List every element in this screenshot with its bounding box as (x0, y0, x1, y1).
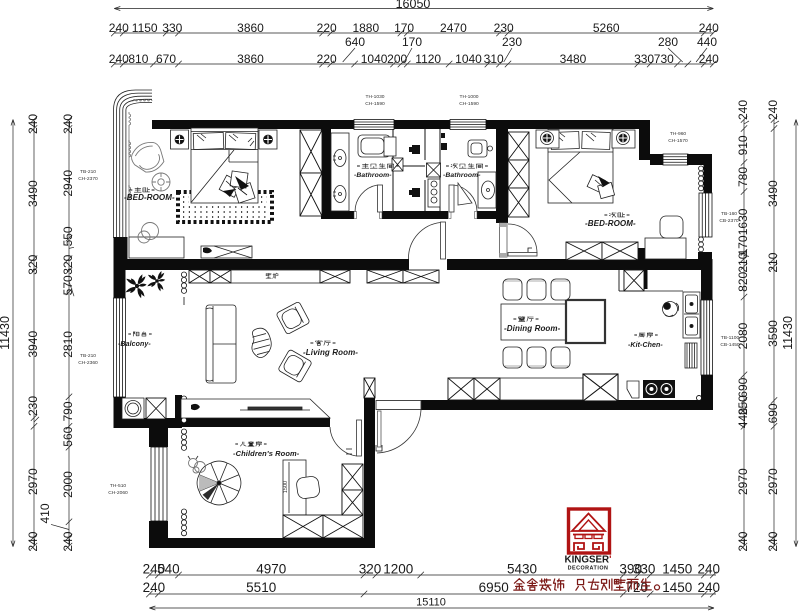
svg-text:5260: 5260 (593, 21, 620, 35)
svg-text:240: 240 (699, 52, 719, 66)
svg-text:170: 170 (402, 35, 422, 49)
svg-text:170: 170 (736, 235, 750, 255)
svg-text:820: 820 (736, 271, 750, 291)
svg-text:11430: 11430 (781, 316, 795, 350)
svg-text:CB-1450: CB-1450 (720, 342, 740, 348)
svg-text:TH-1000: TH-1000 (459, 94, 478, 100)
svg-text:330: 330 (162, 21, 182, 35)
svg-text:220: 220 (317, 21, 337, 35)
svg-text:230: 230 (494, 21, 514, 35)
svg-text:240: 240 (736, 100, 750, 120)
svg-text:3860: 3860 (237, 21, 264, 35)
svg-text:2000: 2000 (61, 471, 75, 498)
svg-text:TH-510: TH-510 (110, 483, 127, 489)
svg-text:670: 670 (156, 52, 176, 66)
svg-text:320: 320 (359, 562, 382, 577)
svg-text:1450: 1450 (662, 562, 692, 577)
svg-text:16050: 16050 (396, 0, 431, 11)
svg-text:730: 730 (654, 52, 674, 66)
svg-text:240: 240 (698, 562, 721, 577)
svg-text:CH-2370: CH-2370 (78, 176, 98, 182)
svg-text:780: 780 (736, 167, 750, 187)
svg-text:2940: 2940 (61, 170, 75, 197)
svg-text:CH-1590: CH-1590 (459, 101, 479, 107)
svg-text:CH-2360: CH-2360 (78, 360, 98, 366)
svg-text:CB-2370: CB-2370 (719, 218, 739, 224)
svg-text:240: 240 (61, 114, 75, 134)
svg-text:11430: 11430 (0, 316, 12, 350)
svg-text:-BED-ROOM-: -BED-ROOM- (124, 193, 175, 202)
svg-text:200: 200 (387, 52, 407, 66)
svg-text:440: 440 (697, 35, 717, 49)
svg-text:240: 240 (26, 114, 40, 134)
svg-text:1040: 1040 (455, 52, 482, 66)
svg-text:3940: 3940 (26, 331, 40, 358)
svg-text:330: 330 (634, 52, 654, 66)
svg-text:3590: 3590 (766, 320, 780, 347)
svg-text:240: 240 (109, 52, 129, 66)
svg-text:1040: 1040 (361, 52, 388, 66)
svg-text:TB-160: TB-160 (721, 211, 737, 217)
svg-text:240: 240 (766, 100, 780, 120)
svg-text:2970: 2970 (26, 468, 40, 495)
svg-text:5510: 5510 (246, 580, 276, 595)
svg-text:CH-2060: CH-2060 (108, 490, 128, 496)
svg-text:-Balcony-: -Balcony- (118, 341, 151, 348)
svg-text:2970: 2970 (766, 468, 780, 495)
svg-text:240: 240 (698, 580, 721, 595)
svg-text:1200: 1200 (383, 562, 413, 577)
svg-text:540: 540 (157, 562, 180, 577)
svg-text:1120: 1120 (415, 52, 441, 66)
svg-text:240: 240 (143, 580, 166, 595)
svg-text:-Children's Room-: -Children's Room- (233, 449, 300, 458)
svg-text:-Dining Room-: -Dining Room- (504, 324, 561, 333)
svg-text:790: 790 (61, 401, 75, 421)
svg-text:810: 810 (128, 52, 148, 66)
svg-text:1450: 1450 (662, 580, 692, 595)
svg-text:-BED-ROOM-: -BED-ROOM- (585, 219, 636, 228)
svg-text:320: 320 (26, 254, 40, 274)
svg-text:3480: 3480 (560, 52, 587, 66)
svg-text:2810: 2810 (61, 331, 75, 358)
svg-text:3490: 3490 (766, 180, 780, 207)
svg-text:310: 310 (484, 52, 504, 66)
svg-text:4970: 4970 (256, 562, 286, 577)
svg-text:3490: 3490 (26, 180, 40, 207)
svg-text:240: 240 (61, 531, 75, 551)
svg-text:5430: 5430 (507, 562, 537, 577)
svg-text:6950: 6950 (479, 580, 509, 595)
svg-text:440: 440 (736, 408, 750, 428)
svg-text:240: 240 (699, 21, 719, 35)
svg-text:TB-210: TB-210 (80, 353, 96, 359)
svg-text:230: 230 (26, 396, 40, 416)
svg-text:220: 220 (317, 52, 337, 66)
svg-text:560: 560 (61, 426, 75, 446)
svg-text:TH-960: TH-960 (670, 131, 687, 137)
svg-text:2470: 2470 (440, 21, 467, 35)
svg-text:-Bathroom-: -Bathroom- (354, 172, 392, 179)
svg-text:170: 170 (394, 21, 414, 35)
svg-text:240: 240 (109, 21, 129, 35)
svg-text:550: 550 (61, 226, 75, 246)
svg-text:-Bathroom-: -Bathroom- (443, 172, 481, 179)
svg-text:1150: 1150 (132, 21, 158, 35)
svg-text:3860: 3860 (237, 52, 264, 66)
svg-text:-Kit-Chen-: -Kit-Chen- (628, 342, 663, 349)
svg-text:1880: 1880 (352, 21, 379, 35)
svg-text:240: 240 (766, 531, 780, 551)
svg-text:690: 690 (736, 377, 750, 397)
svg-text:230: 230 (502, 35, 522, 49)
svg-text:240: 240 (736, 531, 750, 551)
svg-text:690: 690 (766, 403, 780, 423)
svg-text:280: 280 (658, 35, 678, 49)
svg-text:210: 210 (736, 252, 750, 272)
svg-text:320: 320 (61, 254, 75, 274)
svg-text:570: 570 (61, 275, 75, 295)
svg-text:2970: 2970 (736, 468, 750, 495)
svg-text:15110: 15110 (416, 597, 446, 609)
svg-text:640: 640 (345, 35, 365, 49)
svg-text:-Living Room-: -Living Room- (303, 348, 358, 357)
svg-text:DECORATION: DECORATION (568, 566, 609, 572)
svg-text:KINGSER': KINGSER' (565, 555, 612, 566)
svg-text:CH-1590: CH-1590 (365, 101, 385, 107)
svg-text:TB-1100: TB-1100 (721, 335, 740, 341)
svg-text:410: 410 (38, 503, 52, 523)
svg-text:CH-1570: CH-1570 (668, 138, 688, 144)
svg-text:1500: 1500 (283, 481, 289, 493)
svg-text:910: 910 (736, 135, 750, 155)
svg-text:TB-210: TB-210 (80, 169, 96, 175)
svg-text:210: 210 (766, 252, 780, 272)
svg-text:TH-1030: TH-1030 (365, 94, 384, 100)
svg-text:240: 240 (26, 531, 40, 551)
svg-text:330: 330 (633, 562, 656, 577)
